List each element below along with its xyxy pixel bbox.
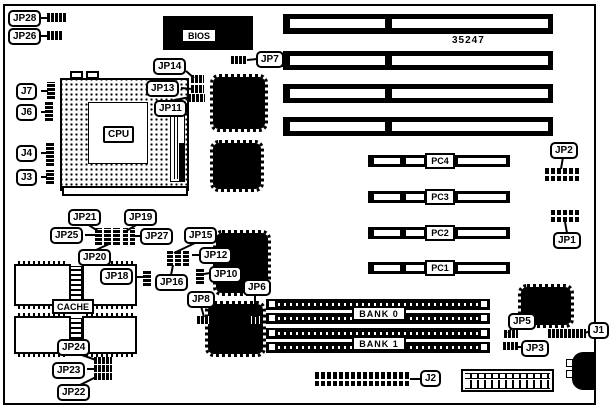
label-j2: J2 <box>420 370 441 387</box>
label-jp19: JP19 <box>124 209 157 226</box>
label-jp15: JP15 <box>184 227 217 244</box>
label-jp20: JP20 <box>78 249 111 266</box>
label-jp22: JP22 <box>57 384 90 401</box>
label-jp1: JP1 <box>553 232 581 249</box>
label-jp25: JP25 <box>50 227 83 244</box>
label-jp2: JP2 <box>550 142 578 159</box>
label-jp8: JP8 <box>187 291 215 308</box>
label-jp5: JP5 <box>508 313 536 330</box>
label-j4: J4 <box>16 145 37 162</box>
label-jp24: JP24 <box>57 339 90 356</box>
label-jp18: JP18 <box>100 268 133 285</box>
label-jp3: JP3 <box>521 340 549 357</box>
label-j7: J7 <box>16 83 37 100</box>
label-jp12: JP12 <box>199 247 232 264</box>
label-jp6: JP6 <box>243 279 271 296</box>
label-jp7: JP7 <box>256 51 284 68</box>
label-jp10: JP10 <box>209 266 242 283</box>
label-jp14: JP14 <box>153 58 186 75</box>
label-jp11: JP11 <box>154 100 187 117</box>
label-j6: J6 <box>16 104 37 121</box>
label-jp21: JP21 <box>68 209 101 226</box>
label-jp28: JP28 <box>8 10 41 27</box>
label-jp16: JP16 <box>155 274 188 291</box>
label-jp23: JP23 <box>52 362 85 379</box>
label-jp26: JP26 <box>8 28 41 45</box>
motherboard-diagram: JP28 JP26 BIOS JP7 35247 CPU JP14 JP13 J… <box>0 0 613 415</box>
label-jp13: JP13 <box>146 80 179 97</box>
label-jp27: JP27 <box>140 228 173 245</box>
label-j1: J1 <box>588 322 609 339</box>
label-j3: J3 <box>16 169 37 186</box>
cpu-label: CPU <box>103 126 134 143</box>
